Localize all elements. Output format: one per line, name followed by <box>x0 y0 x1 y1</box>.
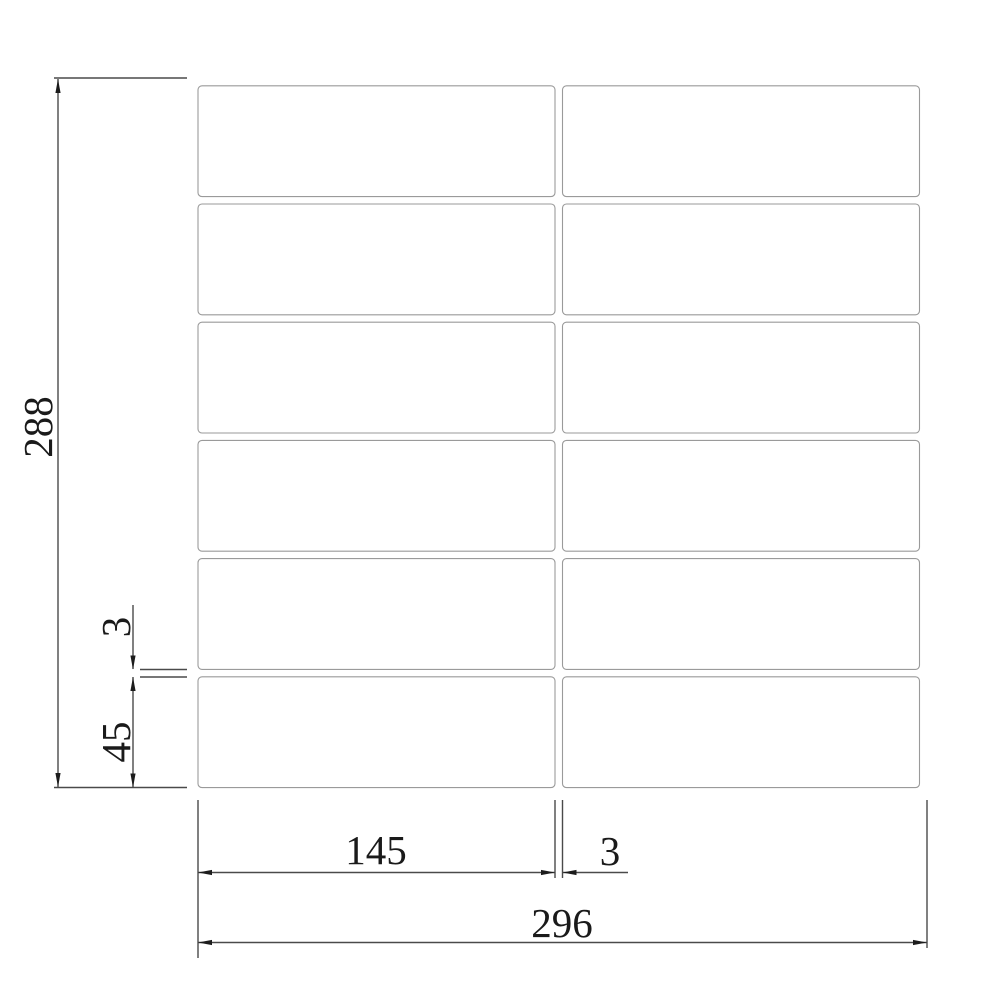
arrowhead-icon <box>55 79 60 93</box>
drawing-canvas: 288 3 45 145 3 296 <box>0 0 1000 1000</box>
tile <box>563 322 920 433</box>
tile <box>198 204 555 315</box>
dim-label-tile-height: 45 <box>93 722 139 763</box>
arrowhead-icon <box>198 940 212 945</box>
dim-label-overall-height: 288 <box>15 396 61 458</box>
arrowhead-icon <box>130 656 135 670</box>
tile <box>198 559 555 670</box>
tile <box>563 86 920 197</box>
tile <box>198 677 555 788</box>
arrowhead-icon <box>563 870 577 875</box>
dim-label-gap-horizontal: 3 <box>600 828 621 874</box>
dim-label-overall-width: 296 <box>531 900 593 946</box>
tile <box>198 440 555 551</box>
arrowhead-icon <box>130 677 135 691</box>
tile <box>563 677 920 788</box>
arrowhead-icon <box>541 870 555 875</box>
arrowhead-icon <box>130 774 135 788</box>
dim-label-tile-width: 145 <box>345 827 407 873</box>
dim-label-gap-vertical-group: 3 <box>93 617 139 638</box>
dim-label-tile-height-group: 45 <box>93 722 139 763</box>
tile-grid <box>198 86 920 788</box>
tile <box>563 440 920 551</box>
tile <box>563 204 920 315</box>
arrowhead-icon <box>913 940 927 945</box>
dimension-drawing: 288 3 45 145 3 296 <box>0 0 1000 1000</box>
tile <box>198 322 555 433</box>
arrowhead-icon <box>198 870 212 875</box>
arrowhead-icon <box>55 773 60 787</box>
tile <box>563 559 920 670</box>
dim-label-overall-height-group: 288 <box>15 396 61 458</box>
tile <box>198 86 555 197</box>
dim-label-gap-vertical: 3 <box>93 617 139 638</box>
